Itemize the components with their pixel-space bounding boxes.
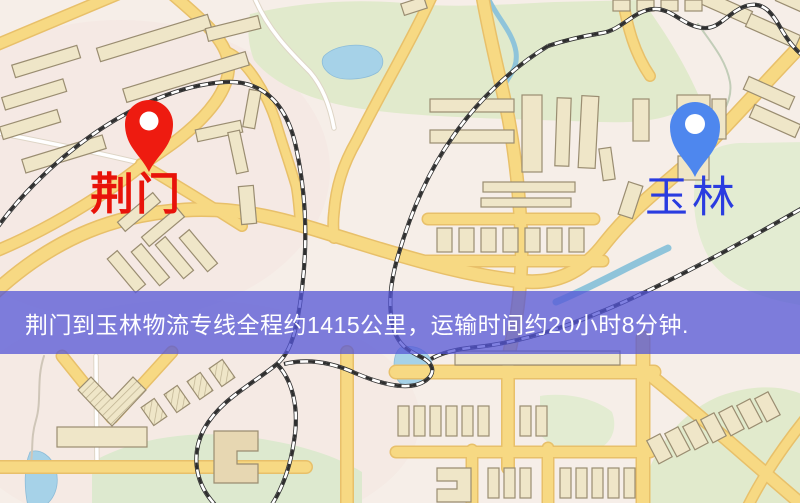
route-banner-text: 荆门到玉林物流专线全程约1415公里，运输时间约20小时8分钟. bbox=[0, 306, 689, 340]
destination-label: 玉林 bbox=[645, 177, 739, 220]
map-viewport: 荆门 玉林 荆门到玉林物流专线全程约1415公里，运输时间约20小时8分钟. bbox=[0, 0, 800, 503]
origin-label: 荆门 bbox=[90, 173, 182, 217]
route-banner: 荆门到玉林物流专线全程约1415公里，运输时间约20小时8分钟. bbox=[0, 291, 800, 354]
map-image bbox=[0, 0, 800, 503]
